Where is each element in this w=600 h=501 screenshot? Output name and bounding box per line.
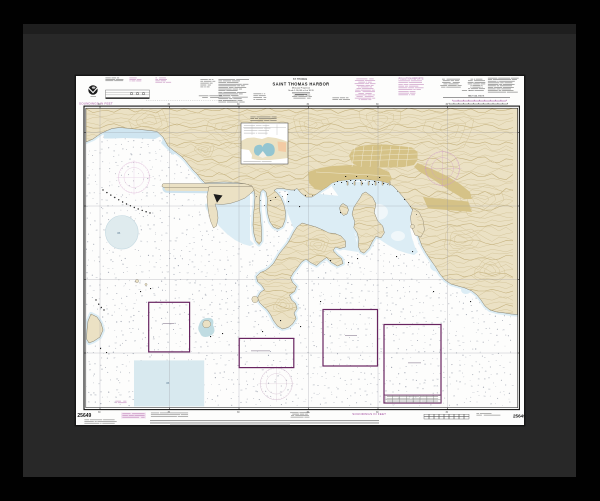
- svg-text:57: 57: [187, 272, 189, 274]
- svg-text:57: 57: [313, 367, 315, 369]
- svg-text:39: 39: [141, 295, 143, 297]
- svg-text:29: 29: [138, 289, 140, 291]
- svg-text:51: 51: [440, 310, 442, 312]
- svg-text:41: 41: [399, 298, 401, 300]
- svg-text:66: 66: [175, 241, 177, 243]
- svg-text:40: 40: [205, 249, 207, 251]
- svg-text:10: 10: [179, 272, 181, 274]
- svg-text:49: 49: [225, 303, 227, 305]
- svg-text:54: 54: [189, 282, 191, 284]
- svg-text:56: 56: [160, 304, 162, 306]
- svg-text:20: 20: [182, 233, 184, 235]
- svg-text:5: 5: [201, 256, 202, 258]
- svg-text:60: 60: [352, 340, 354, 342]
- svg-text:5: 5: [330, 271, 331, 273]
- svg-text:8: 8: [350, 395, 351, 397]
- svg-text:24: 24: [456, 293, 458, 295]
- svg-text:69: 69: [417, 388, 419, 390]
- svg-text:4: 4: [135, 200, 136, 202]
- svg-text:43: 43: [434, 386, 436, 388]
- svg-text:46: 46: [350, 292, 352, 294]
- svg-text:44: 44: [365, 401, 367, 403]
- svg-text:54: 54: [245, 351, 247, 353]
- svg-text:4: 4: [465, 384, 466, 386]
- svg-text:3: 3: [260, 401, 261, 403]
- svg-text:20: 20: [310, 355, 312, 357]
- svg-text:7: 7: [444, 367, 445, 369]
- svg-text:9: 9: [385, 384, 386, 386]
- svg-text:60: 60: [451, 372, 453, 374]
- svg-text:SOUNDINGS IN FEET: SOUNDINGS IN FEET: [79, 102, 113, 106]
- svg-text:13: 13: [176, 237, 178, 239]
- svg-text:20: 20: [193, 323, 195, 325]
- svg-text:64: 64: [194, 283, 196, 285]
- svg-text:43: 43: [410, 305, 412, 307]
- svg-text:25: 25: [89, 192, 91, 194]
- svg-text:57: 57: [149, 160, 151, 162]
- svg-text:60: 60: [149, 152, 151, 154]
- svg-text:36: 36: [122, 264, 124, 266]
- svg-text:41: 41: [123, 353, 125, 355]
- svg-text:49: 49: [366, 394, 368, 396]
- svg-text:53: 53: [320, 366, 322, 368]
- svg-text:29: 29: [173, 307, 175, 309]
- svg-text:33: 33: [432, 380, 434, 382]
- svg-text:12: 12: [473, 322, 475, 324]
- svg-text:25: 25: [107, 268, 109, 270]
- svg-text:3: 3: [465, 357, 466, 359]
- svg-text:SOUNDINGS IN FEET: SOUNDINGS IN FEET: [352, 412, 386, 416]
- svg-text:67: 67: [216, 364, 218, 366]
- svg-text:7: 7: [463, 376, 464, 378]
- svg-text:39: 39: [199, 215, 201, 217]
- svg-text:64: 64: [126, 309, 128, 311]
- svg-text:45: 45: [350, 302, 352, 304]
- svg-text:47: 47: [489, 314, 491, 316]
- svg-text:28: 28: [193, 242, 195, 244]
- svg-text:53: 53: [220, 355, 222, 357]
- svg-text:56: 56: [351, 298, 353, 300]
- svg-text:14: 14: [341, 402, 343, 404]
- svg-text:56: 56: [175, 290, 177, 292]
- svg-text:8: 8: [443, 304, 444, 306]
- svg-text:46: 46: [146, 192, 148, 194]
- svg-text:43: 43: [436, 317, 438, 319]
- svg-text:59: 59: [227, 260, 229, 262]
- svg-text:49: 49: [490, 403, 492, 405]
- svg-text:47: 47: [380, 303, 382, 305]
- svg-text:14: 14: [222, 377, 224, 379]
- svg-text:53: 53: [176, 164, 178, 166]
- svg-text:49: 49: [485, 371, 487, 373]
- svg-text:26: 26: [423, 383, 425, 385]
- svg-text:38: 38: [459, 382, 461, 384]
- svg-text:15: 15: [88, 401, 90, 403]
- svg-text:29: 29: [207, 314, 209, 316]
- svg-text:32: 32: [477, 391, 479, 393]
- svg-text:20: 20: [411, 345, 413, 347]
- svg-text:49: 49: [134, 341, 136, 343]
- svg-text:63: 63: [337, 389, 339, 391]
- svg-text:44: 44: [146, 345, 148, 347]
- svg-text:63: 63: [153, 185, 155, 187]
- svg-text:58: 58: [208, 255, 210, 257]
- svg-text:38: 38: [398, 265, 400, 267]
- svg-text:54: 54: [360, 372, 362, 374]
- svg-text:14: 14: [115, 343, 117, 345]
- svg-text:59: 59: [252, 304, 254, 306]
- svg-text:4: 4: [302, 355, 303, 357]
- svg-text:60: 60: [170, 241, 172, 243]
- svg-text:61: 61: [438, 327, 440, 329]
- svg-text:6: 6: [404, 296, 405, 298]
- svg-text:12: 12: [450, 295, 452, 297]
- svg-text:52: 52: [129, 159, 131, 161]
- svg-text:10: 10: [271, 365, 273, 367]
- svg-text:23: 23: [274, 382, 276, 384]
- svg-text:48: 48: [443, 377, 445, 379]
- svg-text:51: 51: [154, 266, 156, 268]
- svg-text:49: 49: [347, 283, 349, 285]
- svg-text:60: 60: [141, 272, 143, 274]
- svg-text:36: 36: [90, 394, 92, 396]
- svg-text:21: 21: [333, 402, 335, 404]
- svg-text:16: 16: [320, 310, 322, 312]
- svg-text:10: 10: [279, 361, 281, 363]
- svg-text:27: 27: [128, 392, 130, 394]
- svg-text:59: 59: [483, 322, 485, 324]
- svg-text:25649: 25649: [513, 413, 526, 418]
- svg-text:14: 14: [219, 260, 221, 262]
- svg-text:65: 65: [457, 315, 459, 317]
- svg-text:12: 12: [319, 296, 321, 298]
- svg-text:67: 67: [377, 285, 379, 287]
- svg-text:38: 38: [485, 328, 487, 330]
- svg-text:32: 32: [200, 346, 202, 348]
- svg-text:53: 53: [167, 271, 169, 273]
- svg-text:18: 18: [488, 389, 490, 391]
- svg-text:18: 18: [344, 342, 346, 344]
- svg-text:22: 22: [418, 282, 420, 284]
- svg-text:33: 33: [101, 369, 103, 371]
- svg-text:64: 64: [462, 355, 464, 357]
- svg-text:30: 30: [205, 295, 207, 297]
- svg-text:2: 2: [493, 382, 494, 384]
- svg-text:22: 22: [426, 296, 428, 298]
- svg-text:25649: 25649: [77, 413, 91, 419]
- svg-text:39: 39: [370, 383, 372, 385]
- svg-text:27: 27: [497, 342, 499, 344]
- svg-text:51: 51: [100, 224, 102, 226]
- svg-text:9: 9: [340, 346, 341, 348]
- svg-text:43: 43: [160, 193, 162, 195]
- svg-text:23: 23: [423, 326, 425, 328]
- svg-text:48: 48: [277, 376, 279, 378]
- svg-text:24: 24: [459, 365, 461, 367]
- svg-text:15: 15: [228, 360, 230, 362]
- svg-text:6: 6: [496, 360, 497, 362]
- svg-text:31: 31: [139, 265, 141, 267]
- svg-text:55: 55: [503, 367, 505, 369]
- svg-text:45: 45: [385, 390, 387, 392]
- svg-text:11: 11: [273, 245, 275, 247]
- svg-text:16: 16: [484, 378, 486, 380]
- svg-text:12: 12: [225, 364, 227, 366]
- svg-text:SAINT THOMAS HARBOR: SAINT THOMAS HARBOR: [273, 81, 330, 86]
- svg-text:3: 3: [414, 266, 415, 268]
- svg-text:43: 43: [403, 333, 405, 335]
- svg-text:36: 36: [147, 144, 149, 146]
- svg-text:14: 14: [140, 241, 142, 243]
- svg-text:13: 13: [453, 396, 455, 398]
- svg-text:22: 22: [240, 390, 242, 392]
- svg-text:4: 4: [160, 180, 161, 182]
- svg-text:50: 50: [101, 142, 103, 144]
- svg-text:22: 22: [392, 303, 394, 305]
- svg-text:5: 5: [378, 364, 379, 366]
- svg-text:54: 54: [119, 394, 121, 396]
- svg-text:51: 51: [101, 149, 103, 151]
- svg-text:8: 8: [97, 309, 98, 311]
- svg-text:25: 25: [318, 357, 320, 359]
- svg-text:29: 29: [321, 376, 323, 378]
- svg-text:17: 17: [200, 204, 202, 206]
- svg-text:36: 36: [191, 262, 193, 264]
- svg-text:65: 65: [401, 311, 403, 313]
- svg-text:8: 8: [459, 302, 460, 304]
- svg-text:34: 34: [252, 246, 254, 248]
- svg-text:49: 49: [179, 328, 181, 330]
- svg-text:30: 30: [94, 150, 96, 152]
- svg-text:7: 7: [317, 374, 318, 376]
- svg-text:4: 4: [339, 338, 340, 340]
- svg-text:51: 51: [112, 299, 114, 301]
- svg-text:39: 39: [411, 279, 413, 281]
- svg-text:20: 20: [373, 305, 375, 307]
- svg-text:21: 21: [188, 215, 190, 217]
- svg-text:12: 12: [430, 298, 432, 300]
- svg-text:40: 40: [295, 395, 297, 397]
- svg-text:50: 50: [437, 379, 439, 381]
- svg-text:61: 61: [198, 224, 200, 226]
- svg-text:32: 32: [166, 334, 168, 336]
- svg-text:55: 55: [93, 290, 95, 292]
- svg-text:43: 43: [386, 310, 388, 312]
- svg-text:23: 23: [304, 338, 306, 340]
- svg-text:68: 68: [471, 311, 473, 313]
- svg-text:15: 15: [478, 379, 480, 381]
- svg-text:NAUTICAL MILES: NAUTICAL MILES: [468, 95, 485, 98]
- svg-text:41: 41: [459, 370, 461, 372]
- svg-text:43: 43: [328, 388, 330, 390]
- svg-text:24: 24: [135, 210, 137, 212]
- svg-text:54: 54: [512, 385, 514, 387]
- svg-text:23: 23: [386, 327, 388, 329]
- svg-text:4: 4: [444, 311, 445, 313]
- svg-text:28: 28: [225, 314, 227, 316]
- svg-text:62: 62: [149, 229, 151, 231]
- svg-text:24: 24: [116, 367, 118, 369]
- svg-text:58: 58: [459, 345, 461, 347]
- svg-text:9: 9: [189, 260, 190, 262]
- svg-text:47: 47: [88, 184, 90, 186]
- svg-text:8: 8: [404, 281, 405, 283]
- svg-text:52: 52: [130, 317, 132, 319]
- svg-text:14: 14: [218, 384, 220, 386]
- svg-text:65: 65: [220, 309, 222, 311]
- svg-text:16: 16: [231, 379, 233, 381]
- svg-text:67: 67: [266, 249, 268, 251]
- svg-text:65: 65: [126, 267, 128, 269]
- svg-text:25: 25: [150, 169, 152, 171]
- svg-text:69: 69: [96, 277, 98, 279]
- svg-text:53: 53: [347, 264, 349, 266]
- svg-text:61: 61: [87, 178, 89, 180]
- svg-text:3: 3: [93, 375, 94, 377]
- svg-text:19: 19: [472, 392, 474, 394]
- svg-text:47: 47: [113, 358, 115, 360]
- svg-text:28: 28: [189, 243, 191, 245]
- svg-text:67: 67: [141, 142, 143, 144]
- svg-text:61: 61: [317, 394, 319, 396]
- svg-text:17: 17: [159, 141, 161, 143]
- svg-text:13: 13: [115, 277, 117, 279]
- svg-text:45: 45: [308, 327, 310, 329]
- svg-text:8: 8: [470, 355, 471, 357]
- svg-text:53: 53: [255, 391, 257, 393]
- svg-text:24: 24: [89, 286, 91, 288]
- svg-text:61: 61: [155, 321, 157, 323]
- svg-text:41: 41: [213, 359, 215, 361]
- svg-text:67: 67: [100, 391, 102, 393]
- svg-text:48: 48: [361, 291, 363, 293]
- svg-text:40: 40: [116, 378, 118, 380]
- svg-text:67: 67: [200, 310, 202, 312]
- svg-text:62: 62: [96, 230, 98, 232]
- svg-text:38: 38: [422, 262, 424, 264]
- svg-text:68: 68: [340, 334, 342, 336]
- svg-text:6: 6: [312, 281, 313, 283]
- svg-text:68: 68: [195, 333, 197, 335]
- svg-text:48: 48: [110, 259, 112, 261]
- svg-text:16: 16: [347, 255, 349, 257]
- svg-text:8: 8: [155, 196, 156, 198]
- svg-text:59: 59: [247, 298, 249, 300]
- svg-text:36: 36: [166, 203, 168, 205]
- svg-text:54: 54: [180, 172, 182, 174]
- svg-text:Scale 1:10,000 at Lat 18 20: Scale 1:10,000 at Lat 18 20: [288, 89, 314, 92]
- svg-text:66: 66: [95, 394, 97, 396]
- svg-text:28: 28: [482, 314, 484, 316]
- svg-text:11: 11: [400, 273, 402, 275]
- svg-text:48: 48: [152, 140, 154, 142]
- svg-text:16: 16: [412, 380, 414, 382]
- svg-text:2: 2: [307, 315, 308, 317]
- svg-text:53: 53: [312, 271, 314, 273]
- svg-text:60: 60: [103, 229, 105, 231]
- svg-text:60: 60: [101, 187, 103, 189]
- svg-text:4: 4: [500, 392, 501, 394]
- svg-text:5: 5: [165, 318, 166, 320]
- svg-text:46: 46: [496, 373, 498, 375]
- svg-text:53: 53: [423, 317, 425, 319]
- svg-text:8: 8: [256, 404, 257, 406]
- svg-text:53: 53: [368, 291, 370, 293]
- svg-text:26: 26: [344, 380, 346, 382]
- svg-text:32: 32: [324, 385, 326, 387]
- svg-text:18: 18: [228, 344, 230, 346]
- svg-text:4: 4: [412, 299, 413, 301]
- svg-text:25: 25: [232, 246, 234, 248]
- svg-text:29: 29: [194, 347, 196, 349]
- svg-text:69: 69: [262, 370, 264, 372]
- svg-text:51: 51: [337, 273, 339, 275]
- svg-text:55: 55: [154, 295, 156, 297]
- svg-text:8: 8: [179, 297, 180, 299]
- svg-text:61: 61: [161, 198, 163, 200]
- svg-text:65: 65: [424, 364, 426, 366]
- svg-text:31: 31: [94, 221, 96, 223]
- svg-text:45: 45: [106, 213, 108, 215]
- svg-text:68: 68: [255, 311, 257, 313]
- svg-text:16: 16: [319, 315, 321, 317]
- svg-text:41: 41: [195, 342, 197, 344]
- svg-text:29: 29: [476, 311, 478, 313]
- svg-text:33: 33: [323, 262, 325, 264]
- svg-text:55: 55: [484, 396, 486, 398]
- svg-text:54: 54: [173, 268, 175, 270]
- svg-text:14: 14: [447, 340, 449, 342]
- svg-text:24: 24: [386, 292, 388, 294]
- svg-text:22: 22: [364, 391, 366, 393]
- svg-text:51: 51: [86, 206, 88, 208]
- svg-text:29: 29: [499, 365, 501, 367]
- svg-text:9: 9: [405, 274, 406, 276]
- svg-text:25: 25: [445, 358, 447, 360]
- svg-text:43: 43: [212, 290, 214, 292]
- svg-text:50: 50: [253, 386, 255, 388]
- svg-text:28: 28: [198, 290, 200, 292]
- svg-text:20: 20: [134, 303, 136, 305]
- svg-text:59: 59: [378, 339, 380, 341]
- svg-text:55: 55: [185, 305, 187, 307]
- svg-text:47: 47: [273, 342, 275, 344]
- svg-text:27: 27: [201, 271, 203, 273]
- svg-text:8: 8: [331, 394, 332, 396]
- svg-text:18: 18: [419, 302, 421, 304]
- svg-text:29: 29: [165, 233, 167, 235]
- svg-text:28: 28: [188, 200, 190, 202]
- svg-text:42: 42: [149, 357, 151, 359]
- svg-text:36: 36: [117, 231, 121, 235]
- svg-text:46: 46: [189, 251, 191, 253]
- svg-text:27: 27: [246, 361, 248, 363]
- svg-text:40: 40: [286, 353, 288, 355]
- svg-text:31: 31: [327, 327, 329, 329]
- svg-text:3: 3: [225, 285, 226, 287]
- svg-text:19: 19: [122, 205, 124, 207]
- svg-text:45: 45: [299, 308, 301, 310]
- svg-text:67: 67: [116, 390, 118, 392]
- svg-text:33: 33: [313, 385, 315, 387]
- svg-text:POLLUTION REPORTS: POLLUTION REPORTS: [399, 78, 424, 80]
- svg-text:49: 49: [287, 390, 289, 392]
- svg-text:57: 57: [193, 237, 195, 239]
- svg-text:23: 23: [107, 313, 109, 315]
- svg-text:61: 61: [139, 283, 141, 285]
- svg-text:51: 51: [392, 326, 394, 328]
- svg-text:6: 6: [298, 398, 299, 400]
